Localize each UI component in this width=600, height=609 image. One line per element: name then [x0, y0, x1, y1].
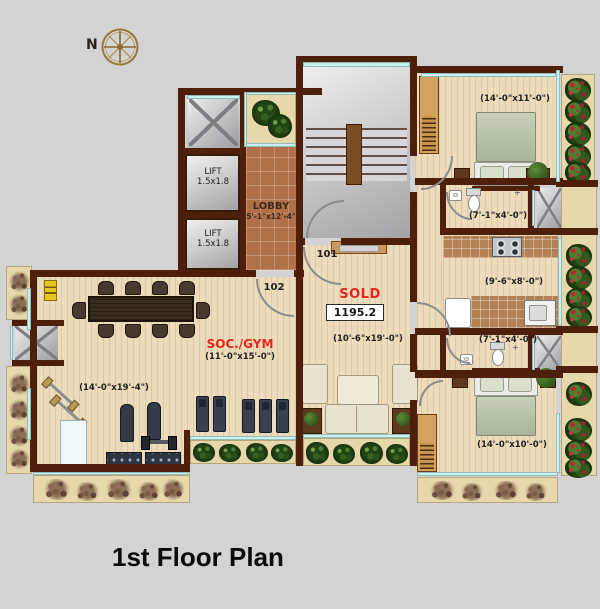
compass-rose-icon — [100, 27, 140, 67]
wall — [440, 335, 446, 375]
wall — [296, 238, 305, 245]
soc-gym-label: SOC./GYM — [190, 338, 290, 352]
plant — [193, 443, 215, 462]
plant — [565, 458, 592, 478]
wall — [12, 360, 64, 366]
plant — [523, 483, 549, 501]
chair — [72, 302, 86, 319]
chair — [152, 324, 168, 338]
plant — [428, 481, 457, 500]
wall — [30, 270, 183, 277]
wall — [182, 270, 256, 277]
window-strip — [27, 288, 31, 330]
lift-size: 1.5x1.8 — [186, 178, 240, 188]
chair — [196, 302, 210, 319]
page-title: 1st Floor Plan — [112, 544, 284, 570]
wall — [556, 228, 598, 235]
wall — [341, 238, 417, 245]
chair — [179, 281, 195, 295]
wall — [296, 245, 303, 466]
armchair — [302, 364, 328, 404]
flat-102-number: 102 — [259, 282, 289, 294]
chair — [98, 324, 114, 338]
wall — [12, 320, 64, 326]
coffee-table — [337, 375, 379, 405]
plant — [9, 448, 30, 470]
gym-hall-size: (14'-0"x19'-4") — [66, 384, 162, 394]
staircase-stringer — [346, 124, 362, 185]
compass-north-label: N — [86, 38, 98, 52]
lift-2-label: LIFT1.5x1.8 — [186, 230, 240, 250]
plant — [565, 122, 591, 146]
plant — [566, 266, 592, 290]
window-strip — [187, 95, 240, 99]
window-strip — [303, 62, 410, 67]
bath-top-size: (7'-1"x4'-0") — [456, 212, 540, 222]
wall — [30, 464, 190, 472]
treadmill — [259, 399, 272, 433]
plant — [333, 444, 355, 464]
living-room-size: (10'-6"x19'-0") — [312, 335, 424, 345]
floor-plan: N — [0, 0, 600, 609]
balcony-glass — [190, 436, 296, 440]
wardrobe — [417, 414, 437, 472]
wall — [556, 326, 598, 333]
window-strip — [244, 92, 296, 95]
gas-stove — [492, 237, 522, 257]
kitchen-size: (9'-6"x8'-0") — [466, 278, 562, 288]
gym-bench — [120, 404, 134, 442]
gym-mat — [60, 420, 87, 466]
treadmill — [276, 399, 289, 433]
bed-blanket — [476, 112, 536, 162]
balcony-glass — [556, 70, 560, 182]
duct-shaft-bath-top — [537, 188, 561, 228]
plant — [306, 442, 329, 464]
wall — [178, 88, 185, 277]
potted-plant — [304, 412, 318, 426]
electrical-panel — [44, 280, 57, 301]
plant — [161, 479, 186, 500]
balcony-glass — [417, 472, 558, 476]
window-strip — [421, 73, 556, 77]
treadmill — [213, 396, 226, 432]
plant — [566, 244, 592, 268]
soc-gym-size: (11'-0"x15'-0") — [186, 353, 294, 363]
wall — [556, 180, 598, 187]
bed-blanket — [476, 396, 536, 436]
lobby-label: LOBBY — [241, 201, 301, 213]
wall — [410, 245, 417, 302]
window-strip — [244, 92, 247, 147]
wall — [556, 366, 598, 373]
bath-bottom-size: (7'-1"x4'-0") — [466, 336, 550, 346]
sold-label: SOLD — [325, 288, 395, 303]
dumbbell — [144, 440, 174, 444]
pillow — [480, 377, 504, 392]
chair — [125, 281, 141, 295]
window-strip — [27, 388, 31, 440]
gym-bench — [147, 402, 161, 440]
sofa — [325, 404, 389, 434]
sofa-cushion-divider — [356, 406, 357, 432]
plant — [271, 444, 293, 462]
chair — [98, 281, 114, 295]
wall — [440, 228, 564, 235]
wall — [410, 400, 417, 466]
plant — [74, 482, 101, 501]
plant — [42, 479, 72, 500]
plant — [565, 418, 592, 442]
chair — [125, 324, 141, 338]
shower-icon: + — [514, 189, 521, 197]
wardrobe — [419, 76, 439, 154]
plant — [459, 483, 485, 501]
plant — [219, 444, 241, 462]
lift-size: 1.5x1.8 — [186, 240, 240, 250]
window-strip — [10, 326, 13, 360]
wall — [30, 270, 37, 472]
plant — [566, 306, 592, 328]
bedroom-bottom-size: (14'-0"x10'-0") — [452, 441, 572, 451]
plant — [268, 114, 292, 138]
plant — [360, 442, 383, 464]
conference-table — [88, 296, 194, 322]
treadmill — [196, 396, 209, 432]
lobby-size: (5'-1"x12'-4") — [231, 213, 311, 222]
wall — [415, 66, 563, 73]
plant — [136, 482, 162, 501]
treadmill — [242, 399, 255, 433]
sold-area-value: 1195.2 — [326, 304, 384, 321]
chair — [179, 324, 195, 338]
plant — [566, 382, 592, 406]
plant — [104, 479, 134, 500]
plant — [386, 444, 408, 464]
potted-plant — [396, 412, 410, 426]
window-strip — [246, 143, 296, 147]
plant — [246, 443, 268, 462]
pillow — [508, 377, 532, 392]
chair — [152, 281, 168, 295]
wall — [415, 370, 563, 378]
lift-1-label: LIFT1.5x1.8 — [186, 168, 240, 188]
bedroom-top-size: (14'-0"x11'-0") — [455, 95, 575, 105]
flat-101-number: 101 — [312, 249, 342, 261]
balcony-glass — [303, 434, 410, 438]
wall — [180, 148, 244, 154]
balcony-glass — [33, 472, 190, 475]
kitchen-sink — [524, 300, 556, 326]
plant — [492, 481, 521, 500]
duct-x-marking — [189, 99, 238, 146]
